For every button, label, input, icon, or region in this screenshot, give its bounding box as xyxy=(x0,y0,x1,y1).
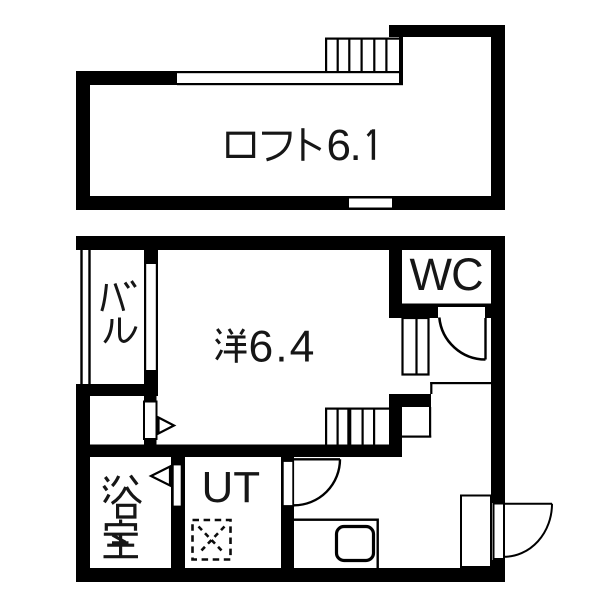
svg-text:WC: WC xyxy=(410,249,483,300)
svg-text:6.: 6. xyxy=(327,121,361,170)
svg-text:6.4: 6.4 xyxy=(249,322,317,371)
svg-text:UT: UT xyxy=(202,463,261,512)
